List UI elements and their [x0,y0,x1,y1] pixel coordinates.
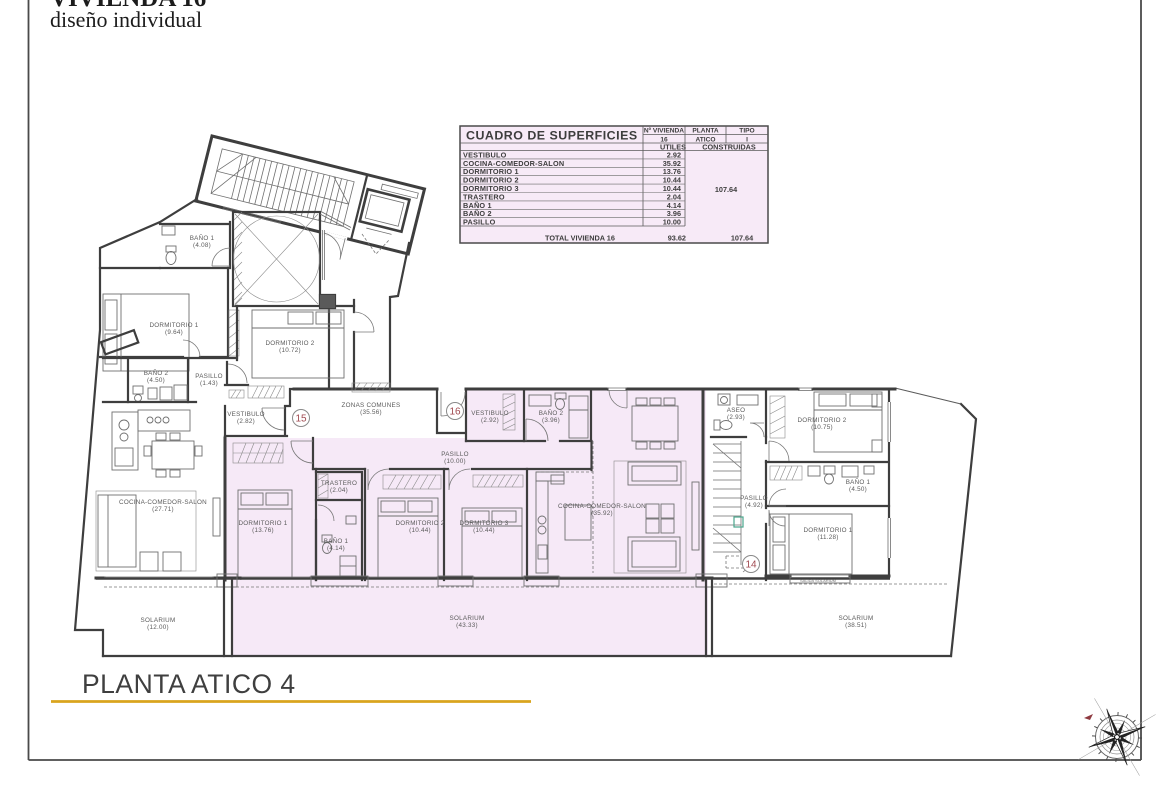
svg-text:(35.56): (35.56) [360,409,382,416]
svg-text:(2.82): (2.82) [237,418,255,425]
svg-text:PASILLO: PASILLO [740,495,768,502]
svg-text:CONSTRUIDAS: CONSTRUIDAS [702,143,756,152]
svg-text:16: 16 [449,407,461,418]
svg-text:(4.08): (4.08) [193,242,211,249]
svg-text:BAÑO 2: BAÑO 2 [144,368,169,377]
svg-text:COCINA-COMEDOR-SALON: COCINA-COMEDOR-SALON [119,499,207,506]
svg-text:(10.00): (10.00) [444,458,466,465]
svg-text:(38.51): (38.51) [845,622,867,629]
svg-text:DORMITORIO 1: DORMITORIO 1 [149,322,198,329]
svg-text:(27.71): (27.71) [152,506,174,513]
svg-text:ZONAS COMUNES: ZONAS COMUNES [342,402,401,409]
svg-text:BAÑO 1: BAÑO 1 [190,233,215,242]
svg-text:(2.93): (2.93) [727,414,745,421]
svg-text:COCINA-COMEDOR-SALON: COCINA-COMEDOR-SALON [558,503,646,510]
svg-text:PLANTA ATICO 4: PLANTA ATICO 4 [82,669,296,699]
svg-text:DORMITORIO 1: DORMITORIO 1 [238,520,287,527]
svg-text:(43.33): (43.33) [456,622,478,629]
svg-text:10.00: 10.00 [663,218,681,227]
svg-text:(4.14): (4.14) [327,545,345,552]
svg-text:(12.00): (12.00) [147,624,169,631]
svg-text:107.64: 107.64 [731,234,754,243]
svg-text:(13.76): (13.76) [252,527,274,534]
svg-text:TRASTERO: TRASTERO [321,480,357,487]
svg-text:(4.50): (4.50) [849,486,867,493]
svg-text:(11.28): (11.28) [817,534,838,541]
svg-text:BAÑO 1: BAÑO 1 [846,477,871,486]
svg-text:(1.43): (1.43) [200,380,218,387]
svg-text:TIPO: TIPO [739,128,754,135]
svg-text:SOLARIUM: SOLARIUM [839,615,874,622]
svg-text:PLANTA: PLANTA [692,128,718,135]
svg-text:DORMITORIO 2: DORMITORIO 2 [265,340,314,347]
svg-text:14: 14 [745,560,757,571]
svg-text:CUADRO DE SUPERFICIES: CUADRO DE SUPERFICIES [466,129,638,143]
svg-text:SALIDA SOLARIUM: SALIDA SOLARIUM [800,578,836,583]
svg-text:DORMITORIO 3: DORMITORIO 3 [459,520,508,527]
svg-text:diseño individual: diseño individual [50,7,202,32]
svg-text:107.64: 107.64 [715,185,738,194]
svg-text:DORMITORIO 1: DORMITORIO 1 [803,527,852,534]
svg-text:(4.92): (4.92) [745,502,763,509]
svg-text:PASILLO: PASILLO [441,451,469,458]
svg-text:DORMITORIO 2: DORMITORIO 2 [395,520,444,527]
svg-text:(2.04): (2.04) [330,487,348,494]
svg-text:VESTIBULO: VESTIBULO [471,410,509,417]
svg-text:DORMITORIO 2: DORMITORIO 2 [797,417,846,424]
svg-text:SOLARIUM: SOLARIUM [141,617,176,624]
svg-text:PASILLO: PASILLO [463,218,496,227]
svg-text:(10.75): (10.75) [811,424,833,431]
svg-text:PASILLO: PASILLO [195,373,223,380]
svg-text:TOTAL VIVIENDA 16: TOTAL VIVIENDA 16 [545,234,615,243]
svg-text:BAÑO 2: BAÑO 2 [539,408,564,417]
svg-text:(4.50): (4.50) [147,377,165,384]
svg-text:(9.64): (9.64) [165,329,183,336]
svg-text:(2.92): (2.92) [481,417,499,424]
svg-text:15: 15 [295,414,307,425]
svg-text:(3.96): (3.96) [542,417,560,424]
svg-text:93.62: 93.62 [668,234,686,243]
svg-text:SOLARIUM: SOLARIUM [450,615,485,622]
svg-text:ASEO: ASEO [727,407,746,414]
svg-text:BAÑO 1: BAÑO 1 [324,536,349,545]
svg-text:(10.72): (10.72) [279,347,301,354]
svg-text:Nº VIVIENDA: Nº VIVIENDA [644,128,684,135]
svg-text:VESTIBULO: VESTIBULO [227,411,265,418]
svg-text:(10.44): (10.44) [409,527,431,534]
svg-text:(10.44): (10.44) [473,527,495,534]
svg-text:(35.92): (35.92) [591,510,613,517]
